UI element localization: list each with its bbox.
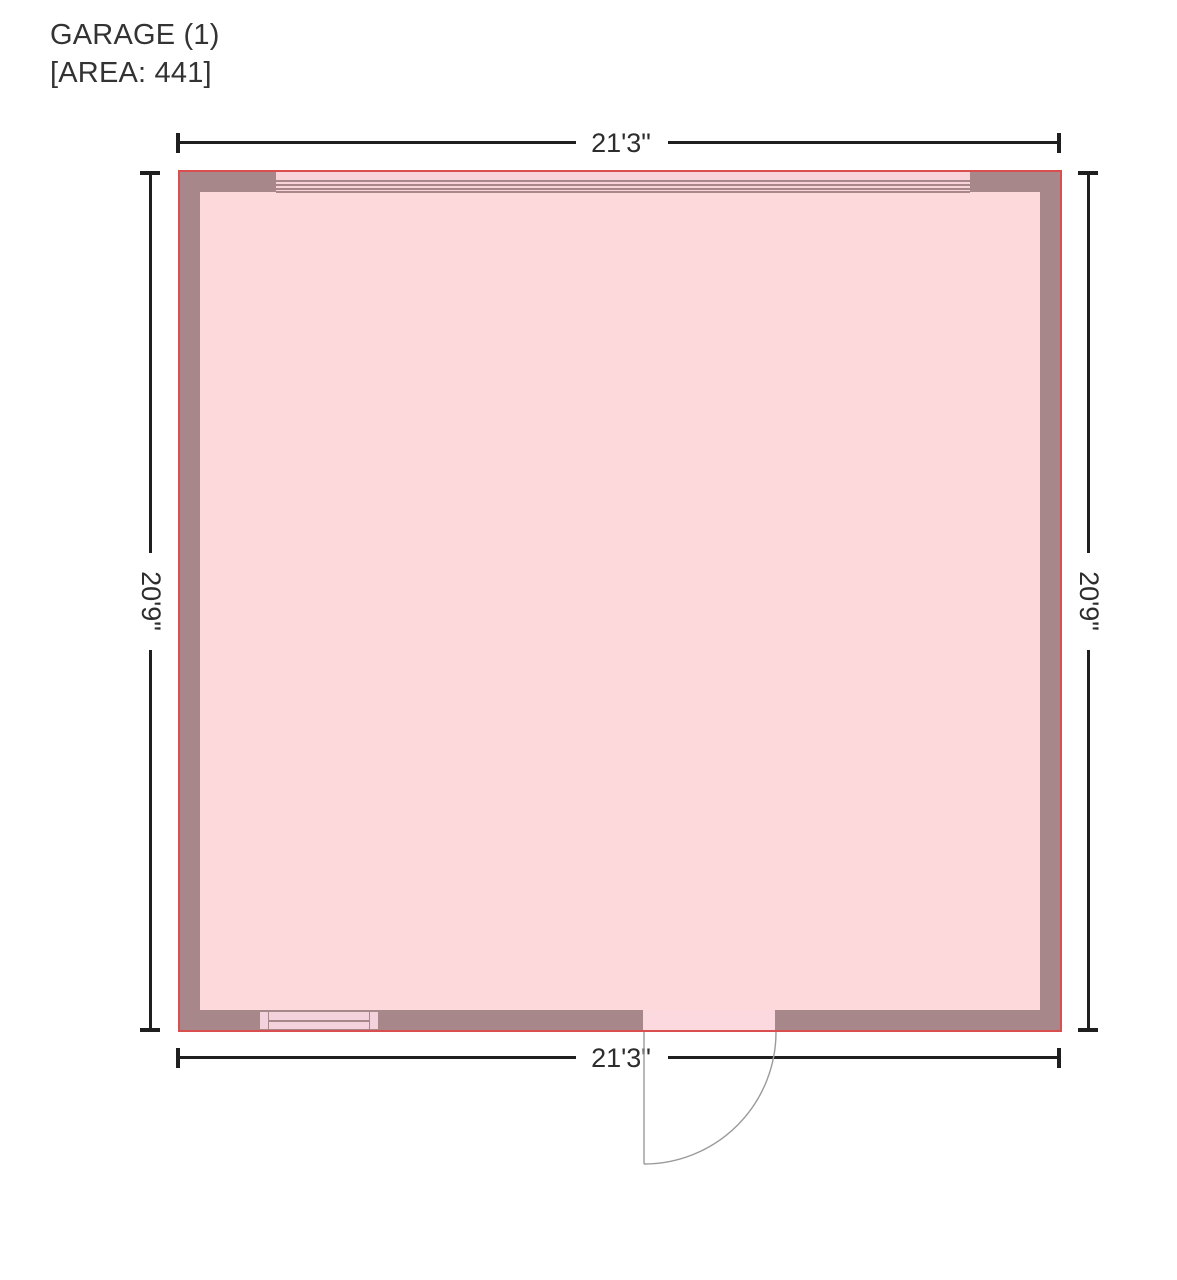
dimension-line (149, 650, 152, 1031)
dimension-tick (1057, 133, 1061, 153)
dimension-tick (1057, 1048, 1061, 1068)
room-name-label: GARAGE (1) (50, 16, 220, 54)
window-jamb-right (369, 1011, 379, 1030)
dimension-label-top: 21'3" (573, 127, 669, 159)
room-area-label: [AREA: 441] (50, 54, 220, 92)
dimension-line (178, 1056, 576, 1059)
window-sash (269, 1020, 369, 1022)
garage-door-slat (276, 191, 970, 193)
window-jamb-left (259, 1011, 269, 1030)
garage-door-slat (276, 184, 970, 186)
plan-title: GARAGE (1) [AREA: 441] (50, 16, 220, 92)
dimension-line (1087, 173, 1090, 553)
dimension-label-right: 20'9" (1073, 553, 1105, 649)
dimension-line (668, 1056, 1060, 1059)
garage-door[interactable] (276, 172, 970, 193)
dimension-label-bottom: 21'3" (573, 1042, 669, 1074)
garage-door-slat (276, 188, 970, 190)
dimension-line (668, 141, 1060, 144)
garage-room[interactable] (178, 170, 1062, 1032)
dimension-line (149, 173, 152, 553)
dimension-line (1087, 650, 1090, 1031)
garage-door-slat (276, 180, 970, 182)
window[interactable] (259, 1011, 379, 1030)
dimension-tick (140, 1028, 160, 1032)
room-floor[interactable] (200, 192, 1040, 1010)
dimension-line (178, 141, 576, 144)
dimension-tick (1078, 1028, 1098, 1032)
door-opening[interactable] (643, 1010, 775, 1030)
floorplan-canvas: GARAGE (1) [AREA: 441] 21'3" 20'9" 20'9"… (0, 0, 1177, 1280)
dimension-label-left: 20'9" (135, 553, 167, 649)
